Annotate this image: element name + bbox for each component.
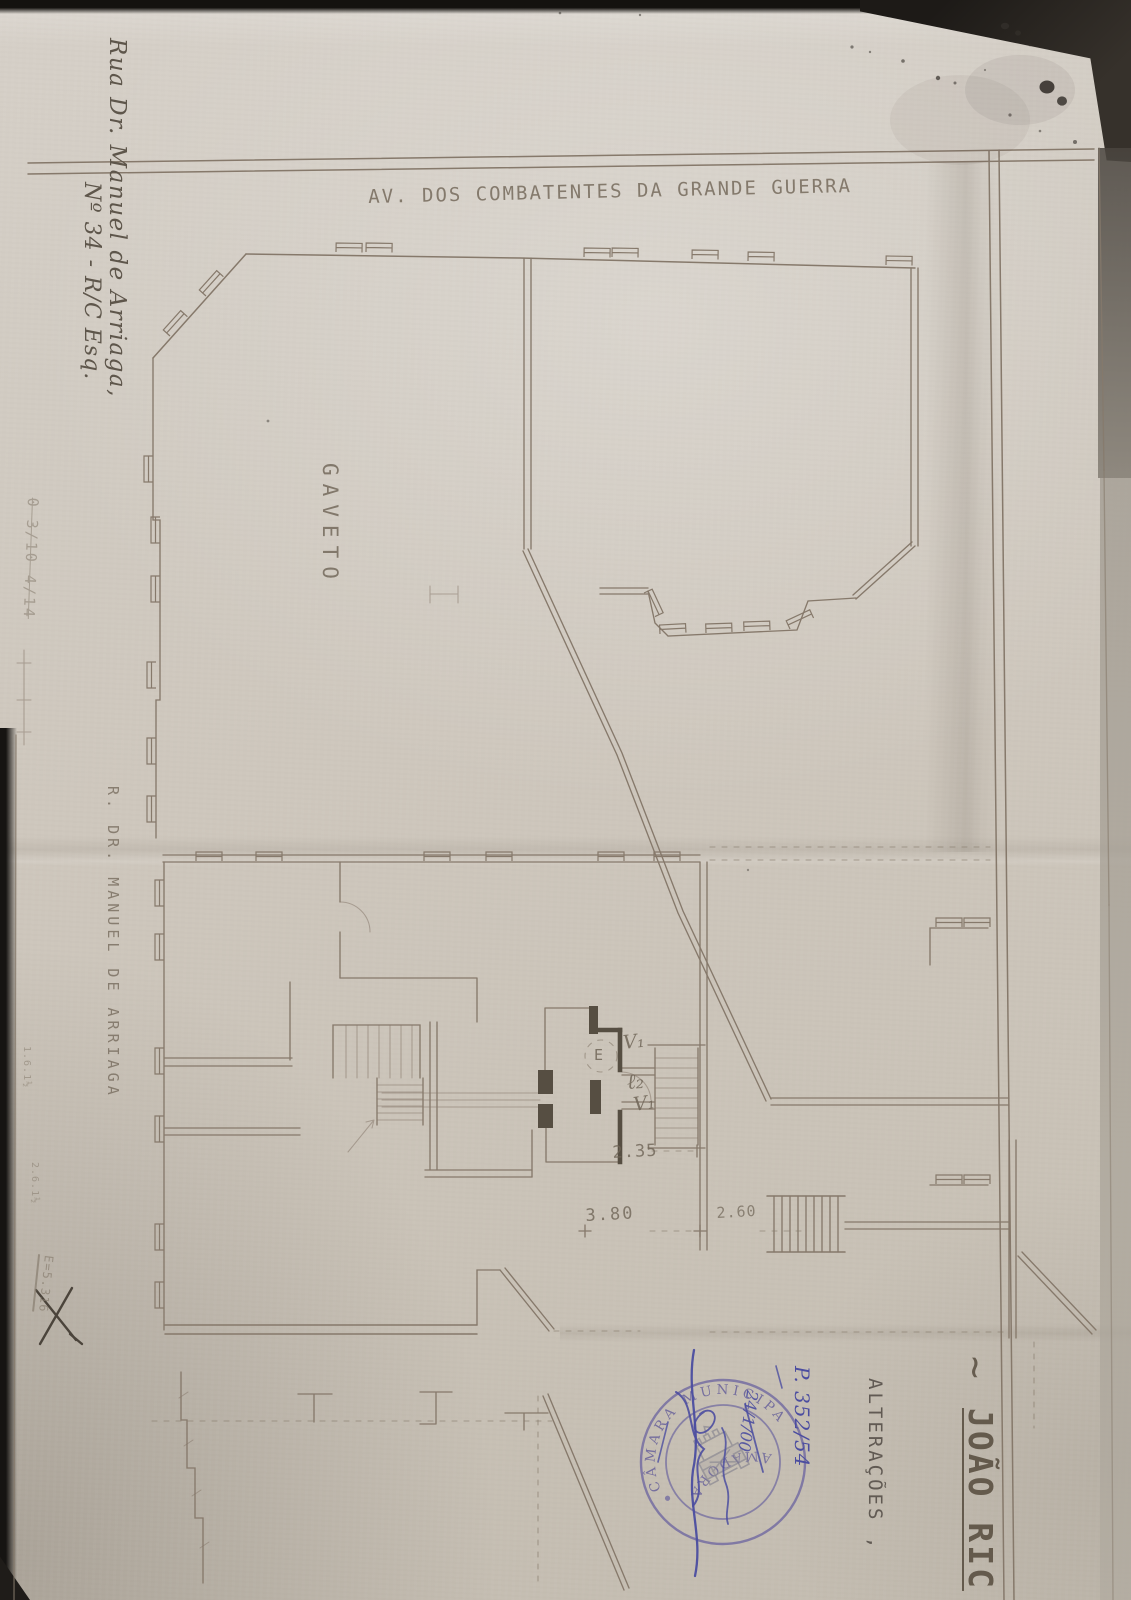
gaveto-label: GAVETO: [318, 463, 342, 587]
title-tilde: ~: [954, 1356, 998, 1379]
entrance-label-e: E: [594, 1046, 603, 1064]
title-alteracoes: ALTERAÇÕES ,: [864, 1378, 886, 1551]
dimension-3-80: 3.80: [585, 1203, 635, 1226]
entrance-thick-walls: [538, 1006, 620, 1162]
scanned-floor-plan-page: CÂMARA MUNICIPAL DA AMADORA: [0, 0, 1131, 1600]
plan-linework: [14, 148, 1113, 1600]
handwritten-address-line1: Rua Dr. Manuel de Arriaga,: [104, 38, 130, 398]
door-label-v1-bottom: V₁: [632, 1091, 656, 1116]
pencil-note-mid-left-2: 2.6.1½: [29, 1162, 40, 1204]
ink-blots: [267, 12, 1077, 872]
dimension-2-60: 2.60: [716, 1202, 757, 1222]
title-owner-name: JOÃO RIC: [961, 1408, 1000, 1591]
pencil-note-mid-left-1: 1.6.1½: [21, 1046, 32, 1088]
door-label-v1-top: V₁: [622, 1030, 646, 1054]
handwritten-address-line2: Nº 34 - R/C Esq.: [79, 182, 104, 380]
dimension-2-35: 2.35: [612, 1141, 658, 1163]
window-symbols: [144, 243, 990, 1308]
pen-process-number: P. 352/54: [790, 1366, 814, 1467]
door-label-l2: ℓ₂: [626, 1069, 645, 1095]
street-name-left: R. DR. MANUEL DE ARRIAGA: [104, 786, 122, 1099]
